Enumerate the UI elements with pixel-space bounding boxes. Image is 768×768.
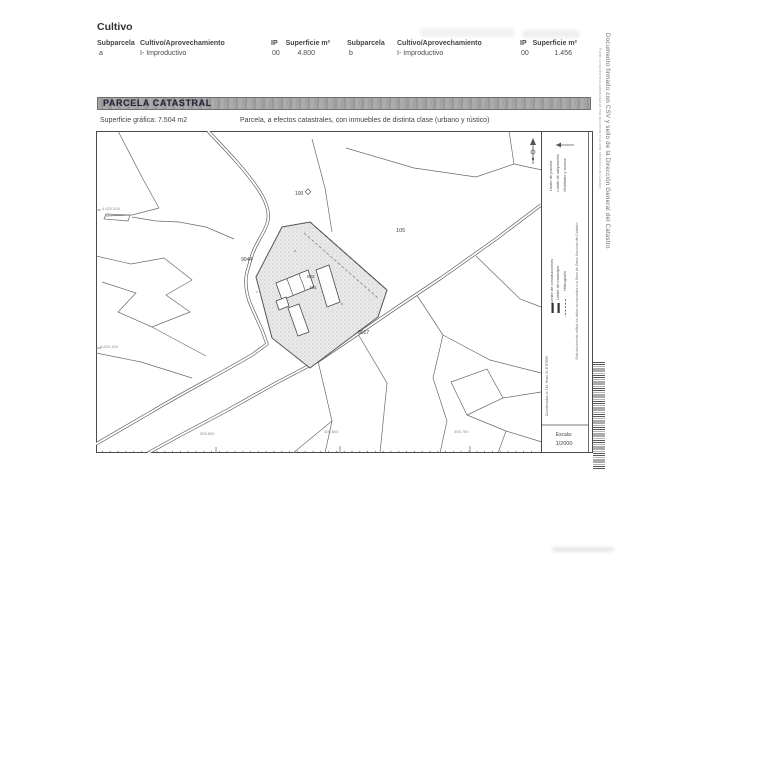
cultivo-title: Cultivo xyxy=(97,21,133,33)
cell-cultivo-a: I- Improductivo xyxy=(140,50,186,57)
parcela-descripcion: Parcela, a efectos catastrales, con inmu… xyxy=(240,117,489,124)
col-subparcela-2: Subparcela xyxy=(347,40,385,47)
legend-note: Este documento refleja los datos incorpo… xyxy=(575,222,579,359)
cadastral-map-svg: 100 105 9044 002 101 9017 4.620.200 4.62… xyxy=(96,131,593,453)
label-002: 002 xyxy=(307,274,315,279)
col-cultivo-2: Cultivo/Aprovechamiento xyxy=(397,40,482,47)
legend-limite-construcciones: Límite de construcciones xyxy=(549,259,554,303)
col-cultivo-1: Cultivo/Aprovechamiento xyxy=(140,40,225,47)
scan-smudge xyxy=(552,547,614,552)
legend-arrow-icon xyxy=(556,143,561,148)
north-arrow-icon xyxy=(530,138,536,164)
scan-smudge xyxy=(522,30,580,38)
label-9017: 9017 xyxy=(358,330,369,336)
parcela-catastral-title: PARCELA CATASTRAL xyxy=(98,98,590,109)
coord-x1: 305.500 xyxy=(200,431,215,436)
cell-subparcela-b: b xyxy=(349,50,353,57)
label-101: 101 xyxy=(309,285,317,290)
superficie-grafica-label: Superficie gráfica: 7.504 m2 xyxy=(100,117,187,124)
diamond-symbol-icon xyxy=(305,189,311,195)
cell-cultivo-b: I- Improductivo xyxy=(397,50,443,57)
legend-limite-municipio: Límite de municipio xyxy=(555,265,560,300)
scanned-cadastral-document: Cultivo Subparcela Cultivo/Aprovechamien… xyxy=(0,0,768,768)
cell-subparcela-a: a xyxy=(99,50,103,57)
csv-verification-text: Puede comprobarse la autenticidad de est… xyxy=(598,48,602,348)
col-superficie-1: Superficie m² xyxy=(285,40,330,47)
col-superficie-2: Superficie m² xyxy=(532,40,577,47)
scale-label: Escala: xyxy=(556,432,572,438)
label-9044: 9044 xyxy=(241,257,252,263)
coord-x3: 305.700 xyxy=(454,429,469,434)
label-100: 100 xyxy=(295,191,304,197)
cadastral-map: 100 105 9044 002 101 9017 4.620.200 4.62… xyxy=(96,131,593,453)
barcode xyxy=(593,362,605,470)
legend-limite-subparcela: Límite de subparcela xyxy=(555,154,560,192)
legend-items: Límite de parcela Límite de subparcela M… xyxy=(548,154,567,303)
legend-limite-parcela: Límite de parcela xyxy=(548,160,553,191)
legend-hidrografia: Hidrografía xyxy=(562,270,567,291)
legend-thick-line-symbol xyxy=(558,303,560,313)
cell-superficie-a: 4.800 xyxy=(280,50,315,57)
coord-y2: 4.620.100 xyxy=(100,344,119,349)
coord-y1: 4.620.200 xyxy=(102,206,121,211)
legend-mobiliario: Mobiliario y aceras xyxy=(562,158,567,191)
csv-signature-text: Documento firmado con CSV y sello de la … xyxy=(604,33,610,363)
scale-value: 1/2000 xyxy=(556,441,573,447)
scan-smudge xyxy=(420,28,515,37)
cell-ip-b: 00 xyxy=(521,50,529,57)
label-105: 105 xyxy=(396,228,405,234)
coord-x2: 305.600 xyxy=(324,429,339,434)
col-ip-1: IP xyxy=(271,40,278,47)
map-legend: Límite de parcela Límite de subparcela M… xyxy=(541,131,589,453)
cell-superficie-b: 1.456 xyxy=(535,50,572,57)
cell-ip-a: 00 xyxy=(272,50,280,57)
col-ip-2: IP xyxy=(520,40,527,47)
parcela-catastral-header: PARCELA CATASTRAL xyxy=(97,97,591,110)
col-subparcela-1: Subparcela xyxy=(97,40,135,47)
legend-utm-note: Coordenadas U.T.M. Huso 31 ETRS89 xyxy=(545,356,549,416)
subject-parcel xyxy=(256,222,387,368)
legend-thick-line-symbol xyxy=(552,303,554,313)
